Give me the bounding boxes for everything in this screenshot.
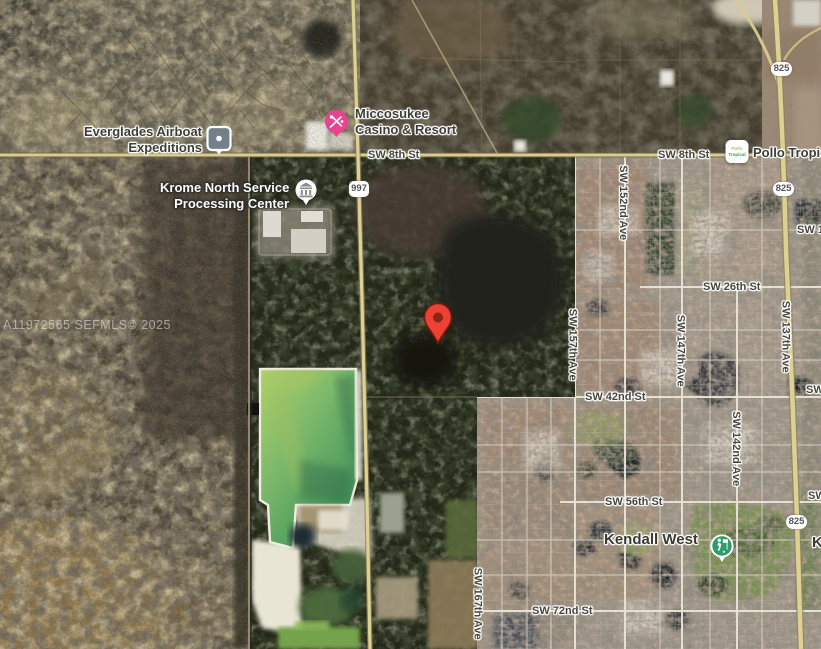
svg-text:Tropical: Tropical [728, 152, 745, 157]
svg-text:Pollo: Pollo [732, 146, 743, 151]
